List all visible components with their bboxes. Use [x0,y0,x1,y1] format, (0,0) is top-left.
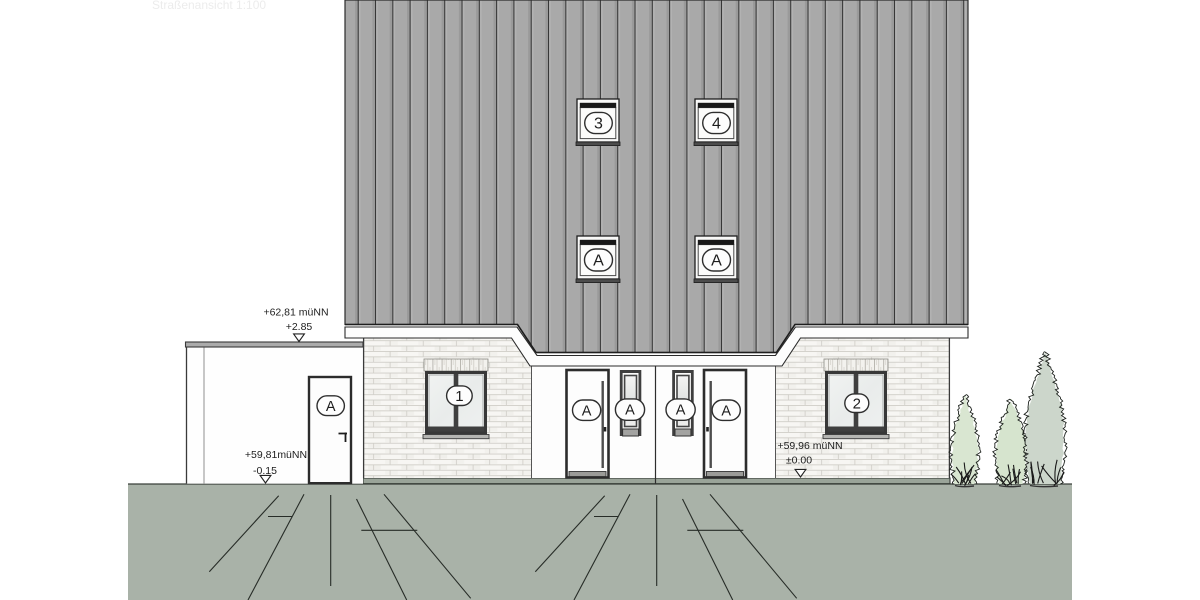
svg-text:A: A [625,403,635,419]
svg-text:2: 2 [853,395,861,412]
svg-text:A: A [676,403,686,419]
svg-text:+59,81müNN: +59,81müNN [245,449,307,461]
svg-text:A: A [721,403,731,419]
svg-text:±0.00: ±0.00 [786,455,812,467]
svg-text:A: A [711,253,722,270]
svg-text:+2.85: +2.85 [286,321,313,333]
svg-text:A: A [593,253,604,270]
svg-text:4: 4 [712,116,721,133]
svg-text:1: 1 [455,388,463,405]
svg-text:Straßenansicht 1:100: Straßenansicht 1:100 [152,0,266,12]
svg-text:+62,81 müNN: +62,81 müNN [263,307,328,319]
svg-text:3: 3 [594,116,603,133]
svg-text:A: A [582,403,592,419]
svg-text:+59,96 müNN: +59,96 müNN [777,440,842,452]
svg-text:A: A [326,399,336,415]
